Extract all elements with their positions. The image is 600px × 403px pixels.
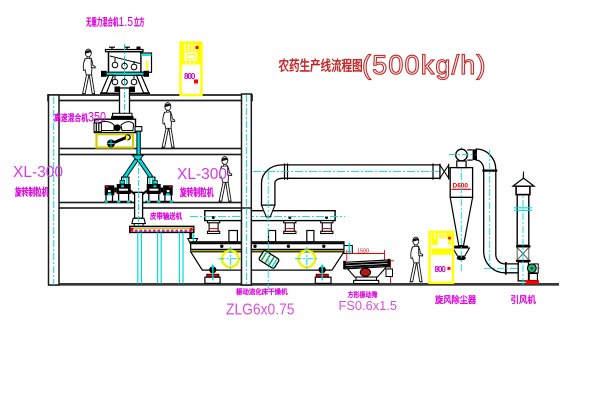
svg-text:800: 800 (435, 265, 447, 274)
svg-text:1.5: 1.5 (119, 15, 134, 29)
svg-text:350: 350 (88, 110, 106, 125)
svg-text:FS0.6x1.5: FS0.6x1.5 (339, 298, 398, 313)
svg-text:ZLG6x0.75: ZLG6x0.75 (226, 302, 295, 319)
svg-text:XL-300: XL-300 (13, 164, 63, 181)
svg-text:XL-300: XL-300 (177, 166, 227, 183)
svg-text:1500: 1500 (357, 249, 369, 255)
svg-text:D600: D600 (453, 183, 469, 190)
svg-text:(500kg/h): (500kg/h) (362, 50, 486, 80)
